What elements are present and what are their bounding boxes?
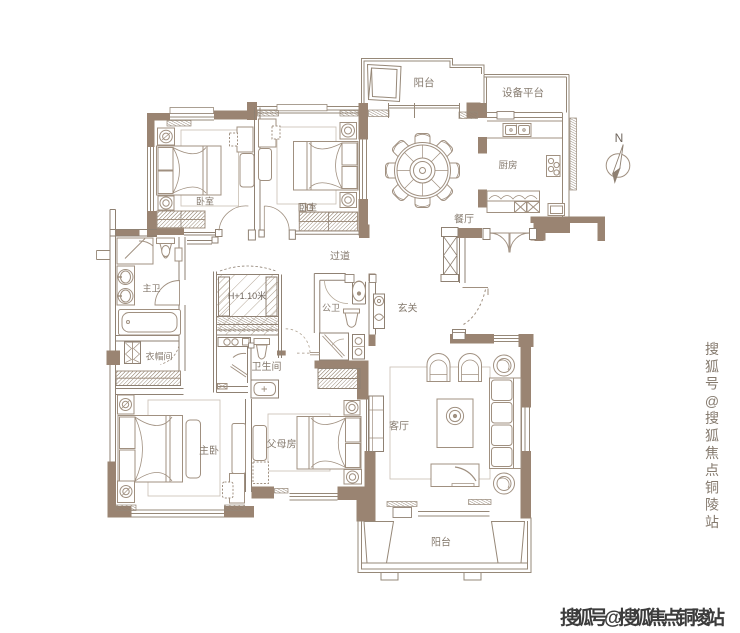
svg-text:狐: 狐 [705,358,719,374]
svg-text:号: 号 [705,376,719,392]
svg-text:设备平台: 设备平台 [502,86,544,99]
svg-text:铜: 铜 [705,479,719,495]
svg-text:主卫: 主卫 [142,283,160,294]
svg-text:餐厅: 餐厅 [454,213,474,226]
svg-text:阳台: 阳台 [431,536,451,549]
svg-text:站: 站 [705,514,719,530]
svg-text:卧室: 卧室 [299,202,317,213]
svg-text:客厅: 客厅 [389,420,409,433]
svg-text:H+1.10米: H+1.10米 [228,290,266,301]
svg-text:父母房: 父母房 [267,438,297,451]
svg-text:玄关: 玄关 [398,302,418,315]
svg-text:过道: 过道 [330,250,350,263]
svg-text:主卧: 主卧 [199,444,219,457]
svg-text:@: @ [705,393,719,409]
svg-text:点: 点 [705,462,719,478]
svg-text:陵: 陵 [705,497,719,513]
svg-text:搜: 搜 [705,410,719,426]
svg-text:公卫: 公卫 [322,303,340,313]
svg-text:厨房: 厨房 [498,160,517,172]
svg-text:搜狐号@搜狐焦点铜陵站: 搜狐号@搜狐焦点铜陵站 [560,606,725,629]
svg-text:搜: 搜 [705,341,719,357]
svg-text:卧室: 卧室 [196,196,214,207]
svg-text:N: N [615,131,624,145]
svg-text:衣帽间: 衣帽间 [145,351,172,362]
svg-text:焦: 焦 [705,445,719,461]
svg-text:阳台: 阳台 [414,76,435,89]
svg-text:卫生间: 卫生间 [252,360,282,373]
svg-text:狐: 狐 [705,428,719,444]
